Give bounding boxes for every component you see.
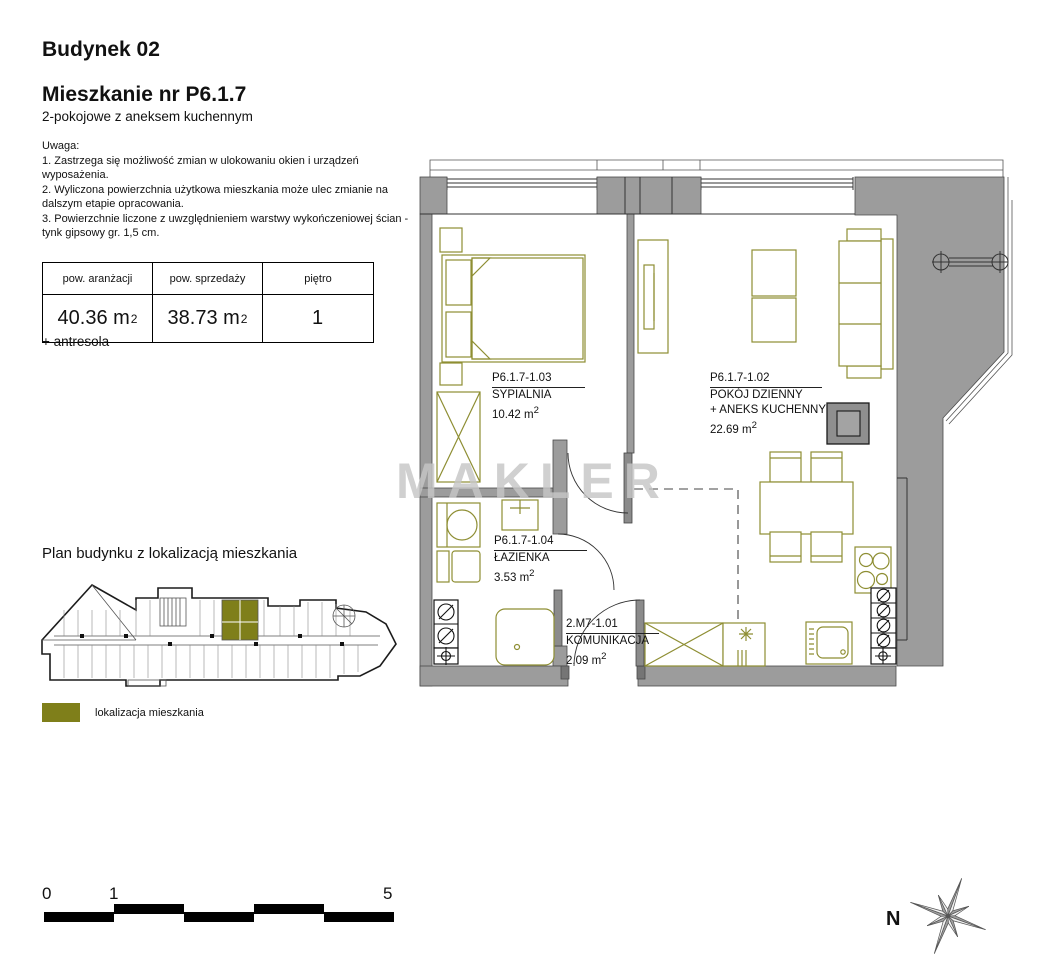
area-table-column: pow. sprzedaży 38.73 m2 — [153, 263, 263, 342]
legend: lokalizacja mieszkania — [42, 703, 204, 722]
bedroom-door — [568, 453, 632, 523]
bed-icon — [442, 255, 585, 362]
building-plan-title: Plan budynku z lokalizacją mieszkania — [42, 545, 297, 562]
apartment-title: Mieszkanie nr P6.1.7 — [42, 83, 246, 107]
room-name: ŁAZIENKA — [494, 552, 550, 564]
compass-north-label: N — [886, 908, 900, 930]
note-item: 2. Wyliczona powierzchnia użytkowa miesz… — [42, 183, 420, 212]
note-item: 1. Zastrzega się możliwość zmian w uloko… — [42, 154, 420, 183]
note-item: 3. Powierzchnie liczone z uwzględnieniem… — [42, 212, 420, 241]
scale-label-1: 1 — [109, 884, 118, 903]
room-label-komunikacja: 2.M7-1.01 KOMUNIKACJA 2.09 m2 — [566, 617, 659, 669]
room-id: P6.1.7-1.04 — [494, 534, 587, 551]
dining-table-icon — [760, 452, 853, 562]
nightstand-icon — [440, 363, 462, 385]
building-location-plan — [40, 582, 400, 692]
boiler-asterisk-icon — [739, 627, 753, 641]
building-outline-icon — [42, 585, 396, 686]
nightstand-icon — [440, 228, 462, 252]
value-sup: 2 — [241, 312, 248, 326]
room-area: 10.42 m2 — [492, 409, 539, 421]
room-label-pokoj-dzienny: P6.1.7-1.02 POKÓJ DZIENNY + ANEKS KUCHEN… — [710, 371, 826, 438]
antresola-note: + antresola — [42, 334, 109, 349]
area-table-column: piętro 1 — [263, 263, 373, 342]
stove-icon — [855, 547, 891, 593]
room-name2: + ANEKS KUCHENNY — [710, 404, 826, 416]
scale-bar-segments — [44, 904, 394, 922]
room-name: POKÓJ DZIENNY — [710, 389, 803, 401]
building-title: Budynek 02 — [42, 38, 160, 62]
room-name: KOMUNIKACJA — [566, 635, 649, 647]
wardrobe-icon — [437, 392, 480, 482]
area-table-value: 1 — [263, 295, 373, 342]
structural-column — [827, 403, 869, 444]
riser-shaft-icon — [871, 588, 896, 664]
notes-block: Uwaga: 1. Zastrzega się możliwość zmian … — [42, 139, 420, 241]
apartment-subtitle: 2-pokojowe z aneksem kuchennym — [42, 109, 253, 124]
room-area: 22.69 m2 — [710, 424, 757, 436]
riser-shaft-icon — [434, 600, 458, 665]
room-area-sup: 2 — [752, 420, 757, 431]
sofa-icon — [839, 229, 893, 378]
room-area-text: 3.53 m — [494, 572, 529, 584]
kitchen-cabinet-icon — [723, 623, 765, 666]
area-table: pow. aranżacji 40.36 m2 pow. sprzedaży 3… — [42, 262, 374, 343]
room-area-sup: 2 — [529, 568, 534, 579]
kitchen-sink-icon — [806, 622, 852, 664]
room-area-sup: 2 — [534, 405, 539, 416]
room-name: SYPIALNIA — [492, 389, 551, 401]
shower-icon — [496, 609, 554, 665]
scale-label-5: 5 — [383, 884, 392, 903]
area-table-header: piętro — [263, 263, 373, 295]
compass-rose-icon: N — [878, 868, 1018, 964]
room-area: 2.09 m2 — [566, 655, 607, 667]
room-area-sup: 2 — [601, 651, 606, 662]
area-table-value: 38.73 m2 — [153, 295, 262, 342]
room-id: 2.M7-1.01 — [566, 617, 659, 634]
value-text: 1 — [312, 307, 323, 330]
value-sup: 2 — [131, 312, 138, 326]
room-id: P6.1.7-1.02 — [710, 371, 822, 388]
washbasin-icon — [502, 500, 538, 530]
armchair-icon — [752, 250, 796, 342]
room-area-text: 10.42 m — [492, 409, 534, 421]
apartment-highlight — [222, 600, 258, 640]
room-area: 3.53 m2 — [494, 572, 535, 584]
room-area-text: 2.09 m — [566, 655, 601, 667]
tv-unit-icon — [638, 240, 668, 353]
room-area-text: 22.69 m — [710, 424, 752, 436]
balcony-outline — [430, 160, 1003, 177]
area-table-column: pow. aranżacji 40.36 m2 — [43, 263, 153, 342]
scale-bar: 0 1 5 — [42, 884, 402, 930]
scale-label-0: 0 — [42, 884, 51, 903]
value-text: 40.36 m — [58, 307, 130, 330]
building-tower-icon — [333, 605, 355, 627]
room-label-sypialnia: P6.1.7-1.03 SYPIALNIA 10.42 m2 — [492, 371, 585, 423]
area-table-header: pow. sprzedaży — [153, 263, 262, 295]
notes-label: Uwaga: — [42, 139, 420, 154]
room-id: P6.1.7-1.03 — [492, 371, 585, 388]
toilet-icon — [437, 551, 480, 582]
legend-swatch — [42, 703, 80, 722]
value-text: 38.73 m — [168, 307, 240, 330]
legend-label: lokalizacja mieszkania — [95, 707, 204, 719]
compass-star — [897, 868, 1000, 964]
area-table-header: pow. aranżacji — [43, 263, 152, 295]
room-label-lazienka: P6.1.7-1.04 ŁAZIENKA 3.53 m2 — [494, 534, 587, 586]
washing-machine-icon — [437, 503, 480, 547]
